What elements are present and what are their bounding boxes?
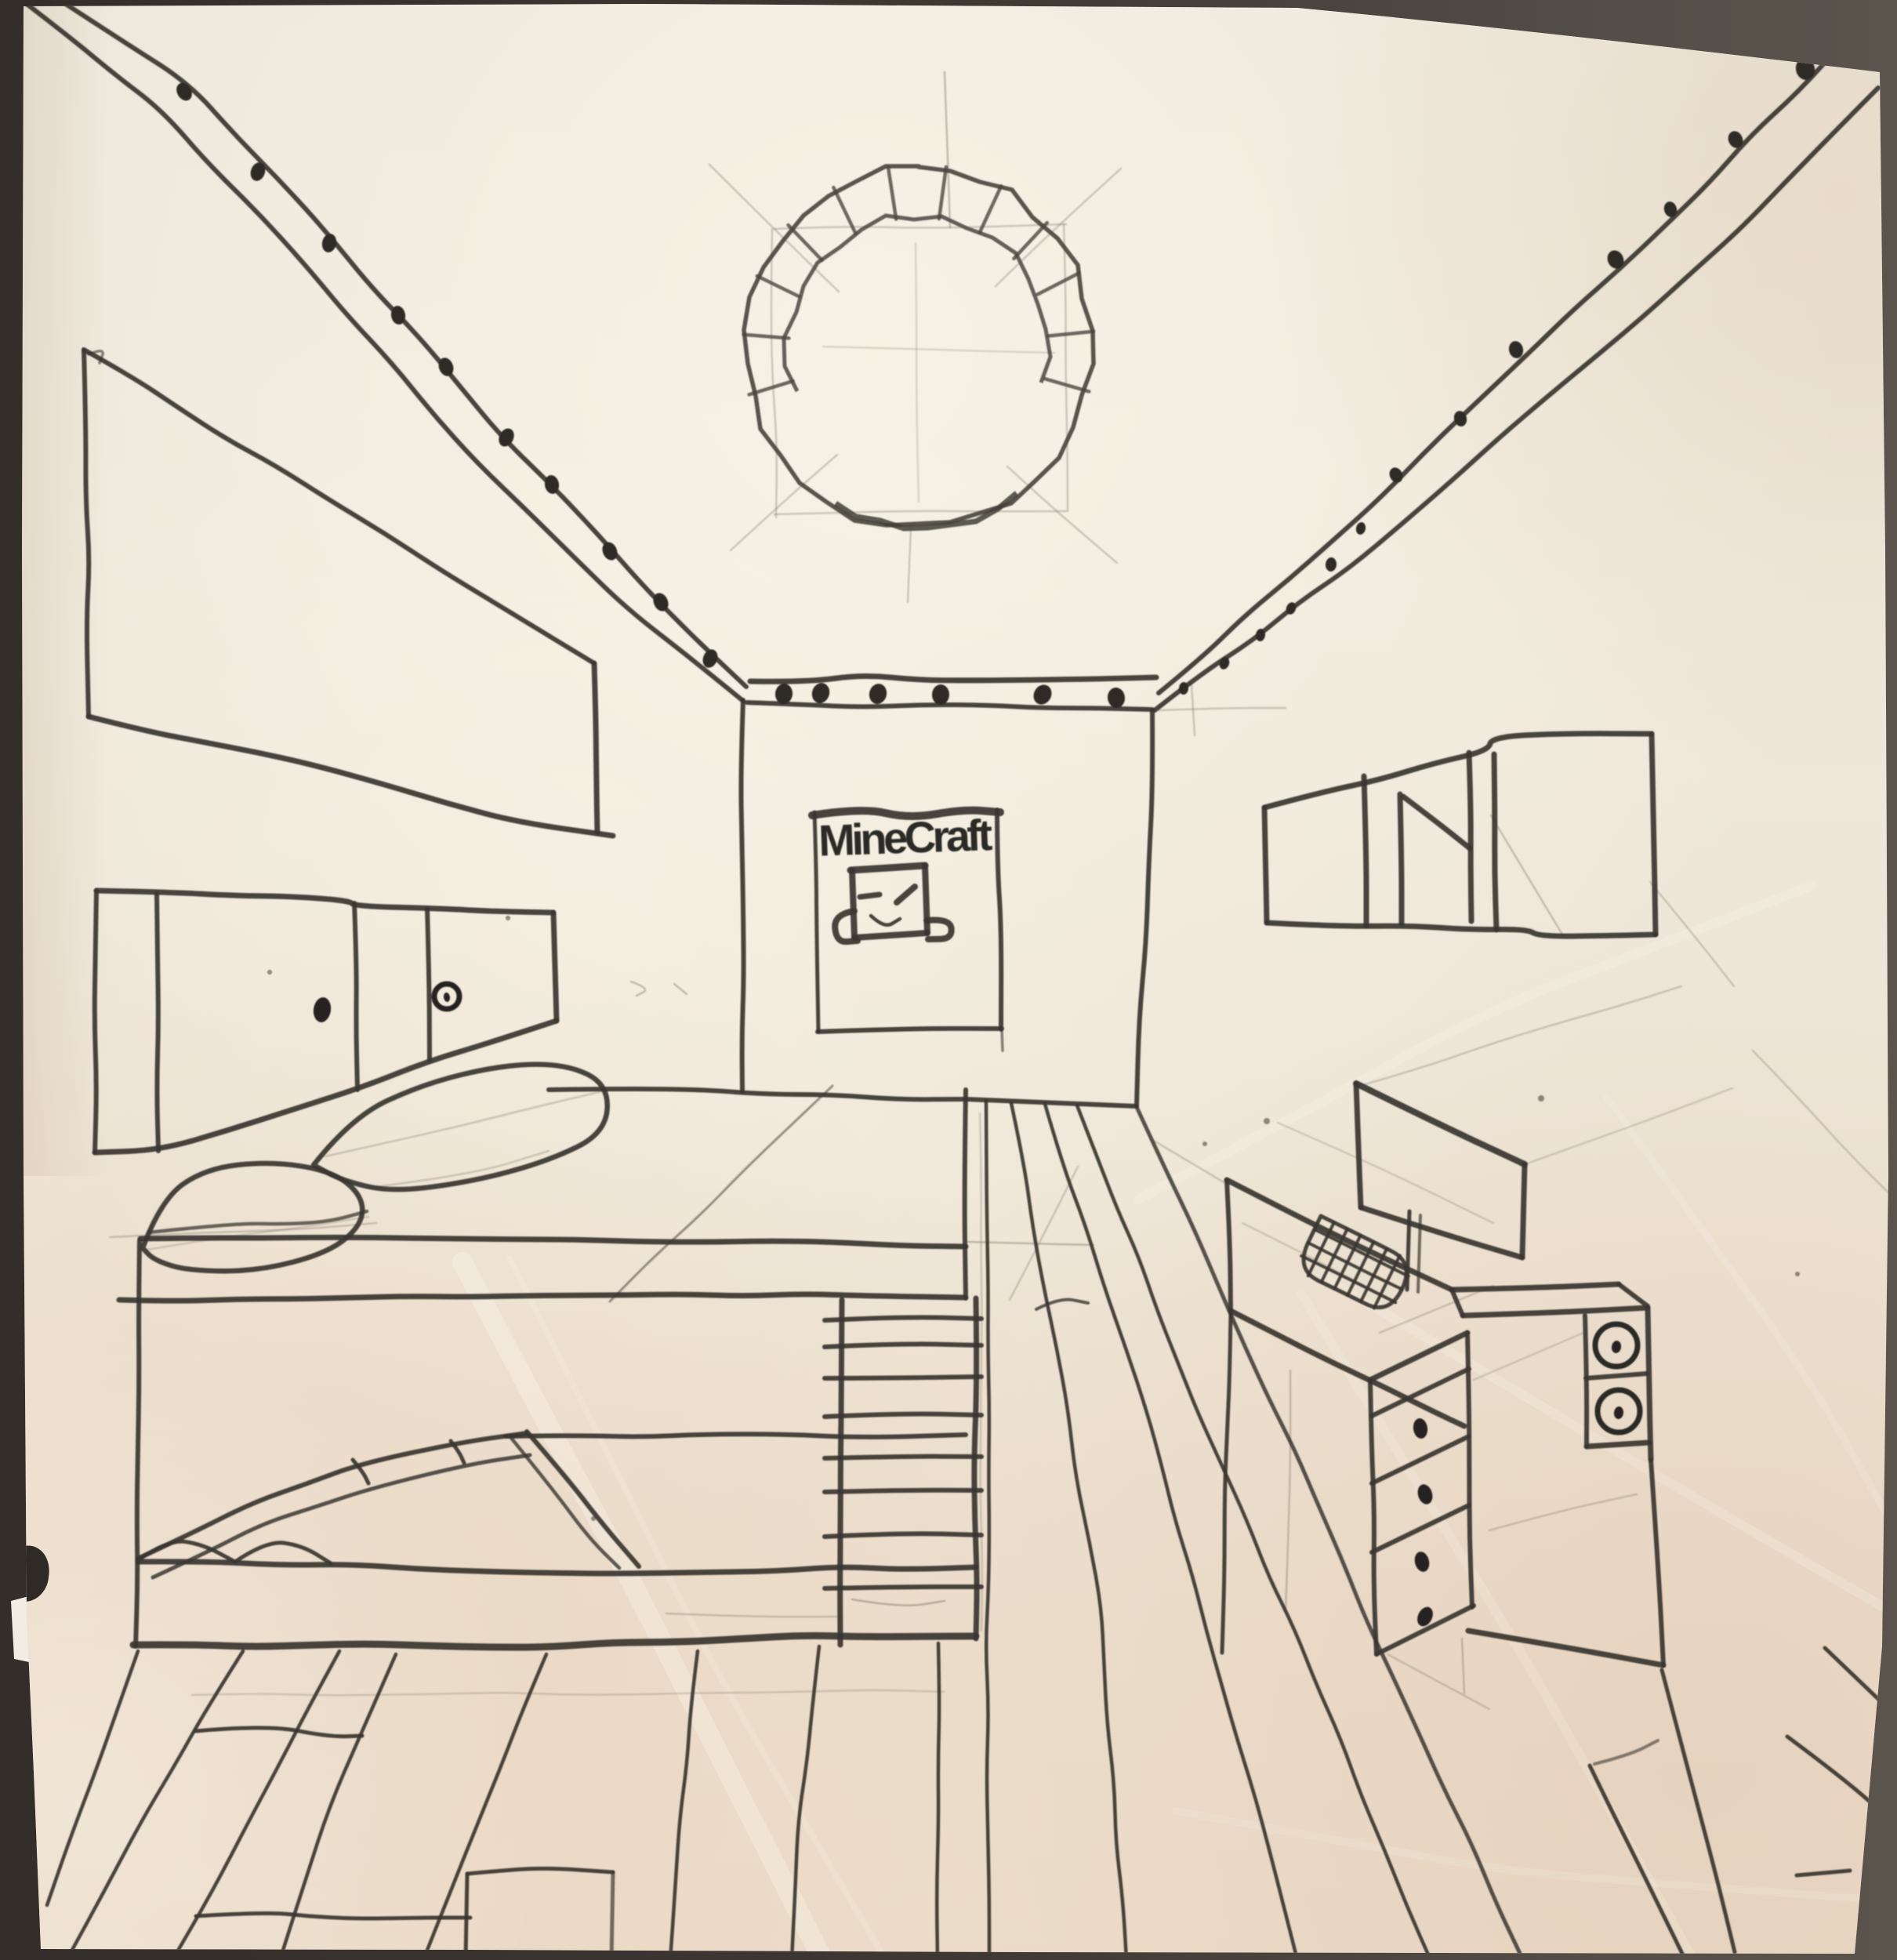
- svg-text:MineCraft: MineCraft: [818, 810, 993, 866]
